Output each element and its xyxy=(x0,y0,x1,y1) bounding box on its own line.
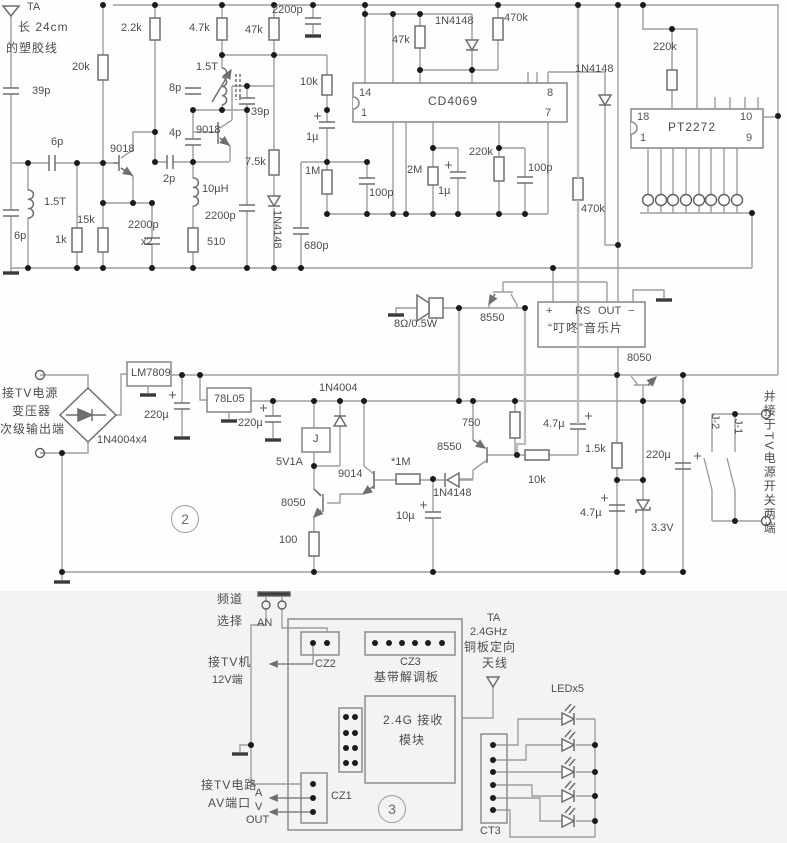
label-rx-led: LEDx5 xyxy=(551,683,584,695)
schematic-canvas: 2 3 TA长 24cm的塑胶线39p20k6p90181.5T6p1k15k2… xyxy=(0,0,787,843)
label-osc-r510: 510 xyxy=(207,236,225,248)
label-psu-r100: 100 xyxy=(279,534,297,546)
label-osc-q9018_b: 9018 xyxy=(196,124,220,136)
label-rx-tv1: 接TV机 xyxy=(208,656,251,669)
label-osc-c2200p_b: 2200p xyxy=(205,210,236,222)
label-audio-q8050: 8050 xyxy=(627,352,651,364)
label-cd-pin14: 14 xyxy=(359,87,371,99)
label-audio-pin_out: OUT xyxy=(598,305,621,317)
label-psu-d3v3: 3.3V xyxy=(651,522,674,534)
label-cd-name: CD4069 xyxy=(428,95,478,108)
label-cd-pin8: 8 xyxy=(547,87,553,99)
label-cd-c1u_b: 1µ xyxy=(438,185,450,197)
diode-icon xyxy=(268,196,280,206)
label-rx-cz2: CZ2 xyxy=(315,658,336,670)
label-psu-j1: J-1 xyxy=(732,419,744,434)
label-osc-r20k: 20k xyxy=(72,61,90,73)
label-audio-spk: 8Ω/0.5W xyxy=(394,318,437,330)
diode-icon xyxy=(599,95,611,105)
label-rx-ta: TA xyxy=(487,612,500,624)
label-cd-c100p_b: 100p xyxy=(528,162,552,174)
label-cd-r1m: 1M xyxy=(305,165,320,177)
diode-icon xyxy=(466,40,478,50)
label-pt-d1n4148: 1N4148 xyxy=(575,63,614,75)
label-rx-ch2: 选择 xyxy=(217,615,243,628)
label-cd-r470k_a: 470k xyxy=(504,12,528,24)
label-osc-l1t5_a: 1.5T xyxy=(44,196,66,208)
label-osc-c2200p_x2: 2200p xyxy=(128,219,159,231)
label-cd-r220k: 220k xyxy=(469,146,493,158)
label-osc-l1t5_b: 1.5T xyxy=(196,61,218,73)
label-rx-ch1: 频道 xyxy=(217,593,243,606)
label-rx-mod1: 2.4G 接收 xyxy=(383,714,443,727)
inductor-10uh-icon xyxy=(193,178,198,206)
label-osc-c680p: 680p xyxy=(304,240,328,252)
label-psu-q8550: 8550 xyxy=(437,441,461,453)
label-psu-r1m_star: *1M xyxy=(391,456,411,468)
label-rx-board: 基带解调板 xyxy=(374,671,439,684)
label-cd-pin1: 1 xyxy=(361,107,367,119)
label-pt-pin18: 18 xyxy=(637,111,649,123)
label-audio-pin_plus: + xyxy=(546,305,552,317)
push-button-icon xyxy=(258,592,290,596)
label-psu-j2: J-2 xyxy=(709,414,721,429)
label-audio-pin_rs: RS xyxy=(575,305,590,317)
label-rx-ant3: 天线 xyxy=(482,657,508,670)
label-rx-tv2: 12V端 xyxy=(212,674,243,686)
label-osc-c4p: 4p xyxy=(169,127,181,139)
label-rx-cz1: CZ1 xyxy=(331,790,352,802)
label-cd-pin7: 7 xyxy=(545,107,551,119)
label-pt-r470k_b: 470k xyxy=(581,203,605,215)
label-pt-pin10: 10 xyxy=(740,111,752,123)
label-rx-out: OUT xyxy=(246,814,269,826)
label-psu-note: 并接于TV电源开关两端 xyxy=(762,390,775,535)
diode-icon xyxy=(445,473,459,487)
label-rx-a: A xyxy=(255,787,262,799)
label-osc-ta: TA xyxy=(27,1,40,13)
label-psu-reg9: LM7809 xyxy=(131,367,171,379)
antenna-icon xyxy=(3,6,19,16)
zener-diode-icon xyxy=(636,500,650,513)
label-osc-l10uh: 10µH xyxy=(202,183,229,195)
label-psu-d1n4004: 1N4004 xyxy=(319,382,358,394)
label-psu-d1n4148: 1N4148 xyxy=(433,487,472,499)
label-osc-q9018_a: 9018 xyxy=(110,143,134,155)
label-cd-c100p_a: 100p xyxy=(369,187,393,199)
label-osc-r4k7: 4.7k xyxy=(189,22,210,34)
label-psu-in3: 次级输出端 xyxy=(0,423,65,436)
label-audio-q8550: 8550 xyxy=(480,312,504,324)
label-psu-c4u7_b: 4.7µ xyxy=(580,507,602,519)
label-osc-x2: x2 xyxy=(141,236,153,248)
label-rx-cz3: CZ3 xyxy=(400,656,421,668)
label-cd-r47k_b: 47k xyxy=(392,34,410,46)
label-psu-r1k5: 1.5k xyxy=(585,443,606,455)
label-rx-ant2: 铜板定向 xyxy=(464,641,516,654)
label-osc-c2p: 2p xyxy=(163,173,175,185)
label-psu-r750: 750 xyxy=(462,417,480,429)
label-osc-c39p_a: 39p xyxy=(32,85,50,97)
label-osc-c8p: 8p xyxy=(169,82,181,94)
label-rx-av2: AV端口 xyxy=(208,797,251,810)
label-psu-relay: J xyxy=(313,433,319,445)
label-osc-r1k: 1k xyxy=(55,234,67,246)
label-osc-d1n4148_a: 1N4148 xyxy=(271,210,283,249)
label-psu-bridge: 1N4004x4 xyxy=(97,434,147,446)
variable-inductor-icon xyxy=(222,68,227,105)
label-osc-r47k_a: 47k xyxy=(245,24,263,36)
label-psu-q9014: 9014 xyxy=(338,468,362,480)
label-osc-r7k5: 7.5k xyxy=(245,156,266,168)
label-osc-r15k: 15k xyxy=(77,214,95,226)
section-number-receiver: 3 xyxy=(378,795,406,823)
label-psu-c4u7_a: 4.7µ xyxy=(543,418,565,430)
label-osc-c2200p_a: 2200p xyxy=(272,4,303,16)
label-pt-pin9: 9 xyxy=(746,132,752,144)
label-rx-av1: 接TV电路 xyxy=(201,779,257,792)
label-cd-r10k: 10k xyxy=(300,76,318,88)
label-osc-ant_note1: 长 24cm xyxy=(18,21,69,34)
label-psu-in1: 接TV电源 xyxy=(2,387,58,400)
label-psu-reg5: 78L05 xyxy=(214,393,245,405)
label-rx-ct3: CT3 xyxy=(480,825,501,837)
diode-icon xyxy=(334,416,346,426)
label-osc-c6p_a: 6p xyxy=(51,136,63,148)
label-audio-name: “叮咚”音乐片 xyxy=(548,322,623,335)
label-rx-ant1: 2.4GHz xyxy=(470,626,507,638)
inductor-icon xyxy=(28,190,33,218)
label-pt-pin1: 1 xyxy=(640,132,646,144)
label-cd-r2m: 2M xyxy=(407,164,422,176)
label-pt-r220k: 220k xyxy=(653,41,677,53)
label-psu-r10k_b: 10k xyxy=(528,474,546,486)
section-number-power: 2 xyxy=(171,505,199,533)
label-psu-c10u: 10µ xyxy=(396,510,415,522)
label-psu-c220u_c: 220µ xyxy=(646,449,671,461)
label-osc-ant_note2: 的塑胶线 xyxy=(6,42,58,55)
label-psu-c220u_b: 220µ xyxy=(238,417,263,429)
label-cd-c1u_a: 1µ xyxy=(306,131,318,143)
label-rx-btn: AN xyxy=(257,617,272,629)
label-osc-r2k2: 2.2k xyxy=(121,22,142,34)
label-cd-d1n4148_b: 1N4148 xyxy=(435,15,474,27)
label-rx-v: V xyxy=(255,801,262,813)
label-psu-q8050_c: 8050 xyxy=(281,497,305,509)
label-osc-c6p_b: 6p xyxy=(14,230,26,242)
label-psu-in2: 变压器 xyxy=(12,405,51,418)
label-psu-v5v1a: 5V1A xyxy=(276,456,303,468)
label-psu-c220u_a: 220µ xyxy=(144,409,169,421)
label-osc-c39p_b: 39p xyxy=(251,106,269,118)
label-rx-mod2: 模块 xyxy=(399,734,425,747)
label-audio-pin_minus: − xyxy=(628,305,634,317)
label-pt-name: PT2272 xyxy=(668,121,716,134)
